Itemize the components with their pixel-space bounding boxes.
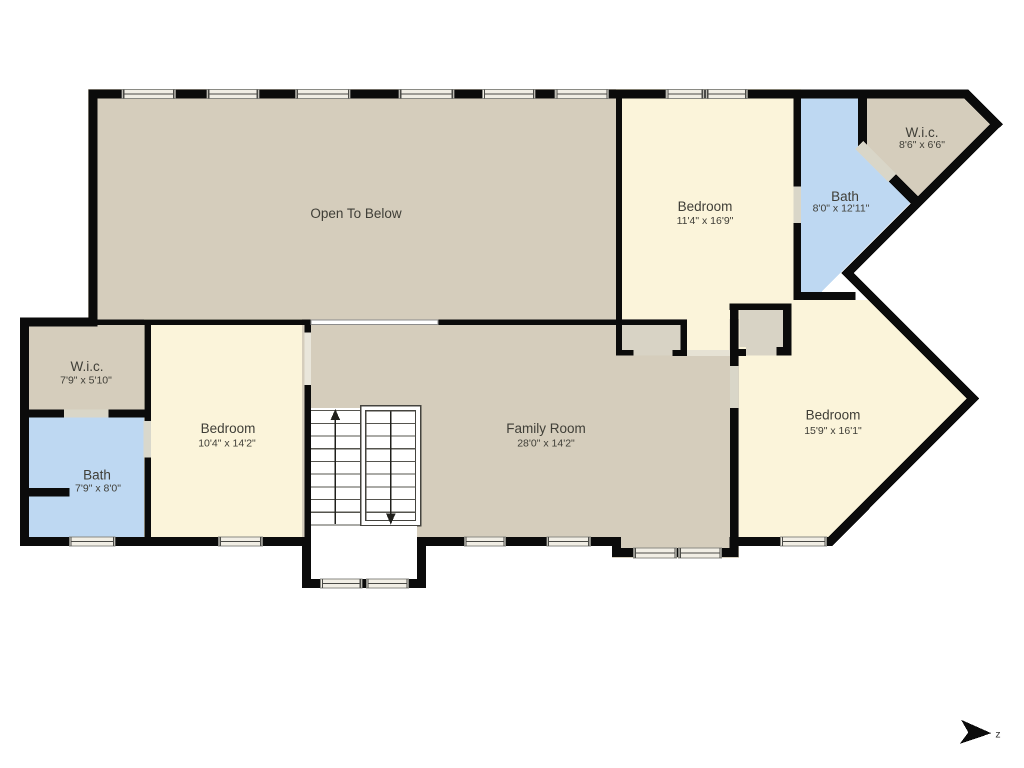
svg-text:W.i.c.: W.i.c.: [906, 125, 939, 140]
svg-text:Open To Below: Open To Below: [310, 206, 402, 221]
svg-text:Family Room: Family Room: [506, 421, 586, 436]
svg-text:Bedroom: Bedroom: [201, 421, 256, 436]
svg-text:11'4" x 16'9": 11'4" x 16'9": [677, 215, 734, 227]
svg-text:Bedroom: Bedroom: [678, 199, 733, 214]
svg-text:Bedroom: Bedroom: [806, 408, 861, 423]
svg-text:7'9" x 5'10": 7'9" x 5'10": [60, 375, 112, 387]
svg-text:W.i.c.: W.i.c.: [71, 359, 104, 374]
svg-text:8'0" x 12'11": 8'0" x 12'11": [813, 203, 870, 215]
svg-text:28'0" x 14'2": 28'0" x 14'2": [517, 438, 575, 450]
svg-text:z: z: [995, 729, 1000, 741]
svg-text:Bath: Bath: [83, 468, 111, 483]
svg-text:15'9" x 16'1": 15'9" x 16'1": [804, 425, 862, 437]
svg-text:8'6" x 6'6": 8'6" x 6'6": [899, 139, 945, 151]
svg-text:10'4" x 14'2": 10'4" x 14'2": [198, 438, 256, 450]
svg-text:7'9" x 8'0": 7'9" x 8'0": [75, 483, 121, 495]
